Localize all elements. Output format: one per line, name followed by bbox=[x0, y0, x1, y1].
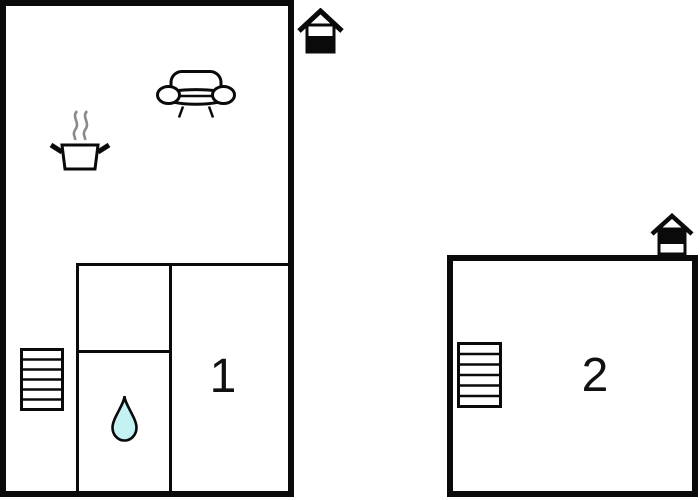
stairs-icon bbox=[20, 348, 64, 411]
floor-plan-figure: 1 2 bbox=[0, 0, 700, 500]
interior-wall-horizontal-bath bbox=[76, 350, 172, 353]
house-ground-floor-icon bbox=[297, 8, 344, 57]
interior-wall-horizontal-top bbox=[77, 263, 289, 266]
cooking-pot-icon bbox=[47, 107, 111, 175]
house-upper-floor-icon bbox=[650, 213, 694, 259]
interior-wall-vertical-left bbox=[76, 263, 79, 492]
unit-1-label: 1 bbox=[198, 352, 248, 402]
interior-wall-vertical-room1 bbox=[169, 263, 172, 492]
floorplan-unit-1 bbox=[0, 0, 294, 497]
sofa-icon bbox=[155, 69, 237, 119]
water-drop-icon bbox=[110, 394, 139, 443]
unit-2-label: 2 bbox=[570, 351, 620, 401]
stairs-icon bbox=[457, 342, 502, 408]
